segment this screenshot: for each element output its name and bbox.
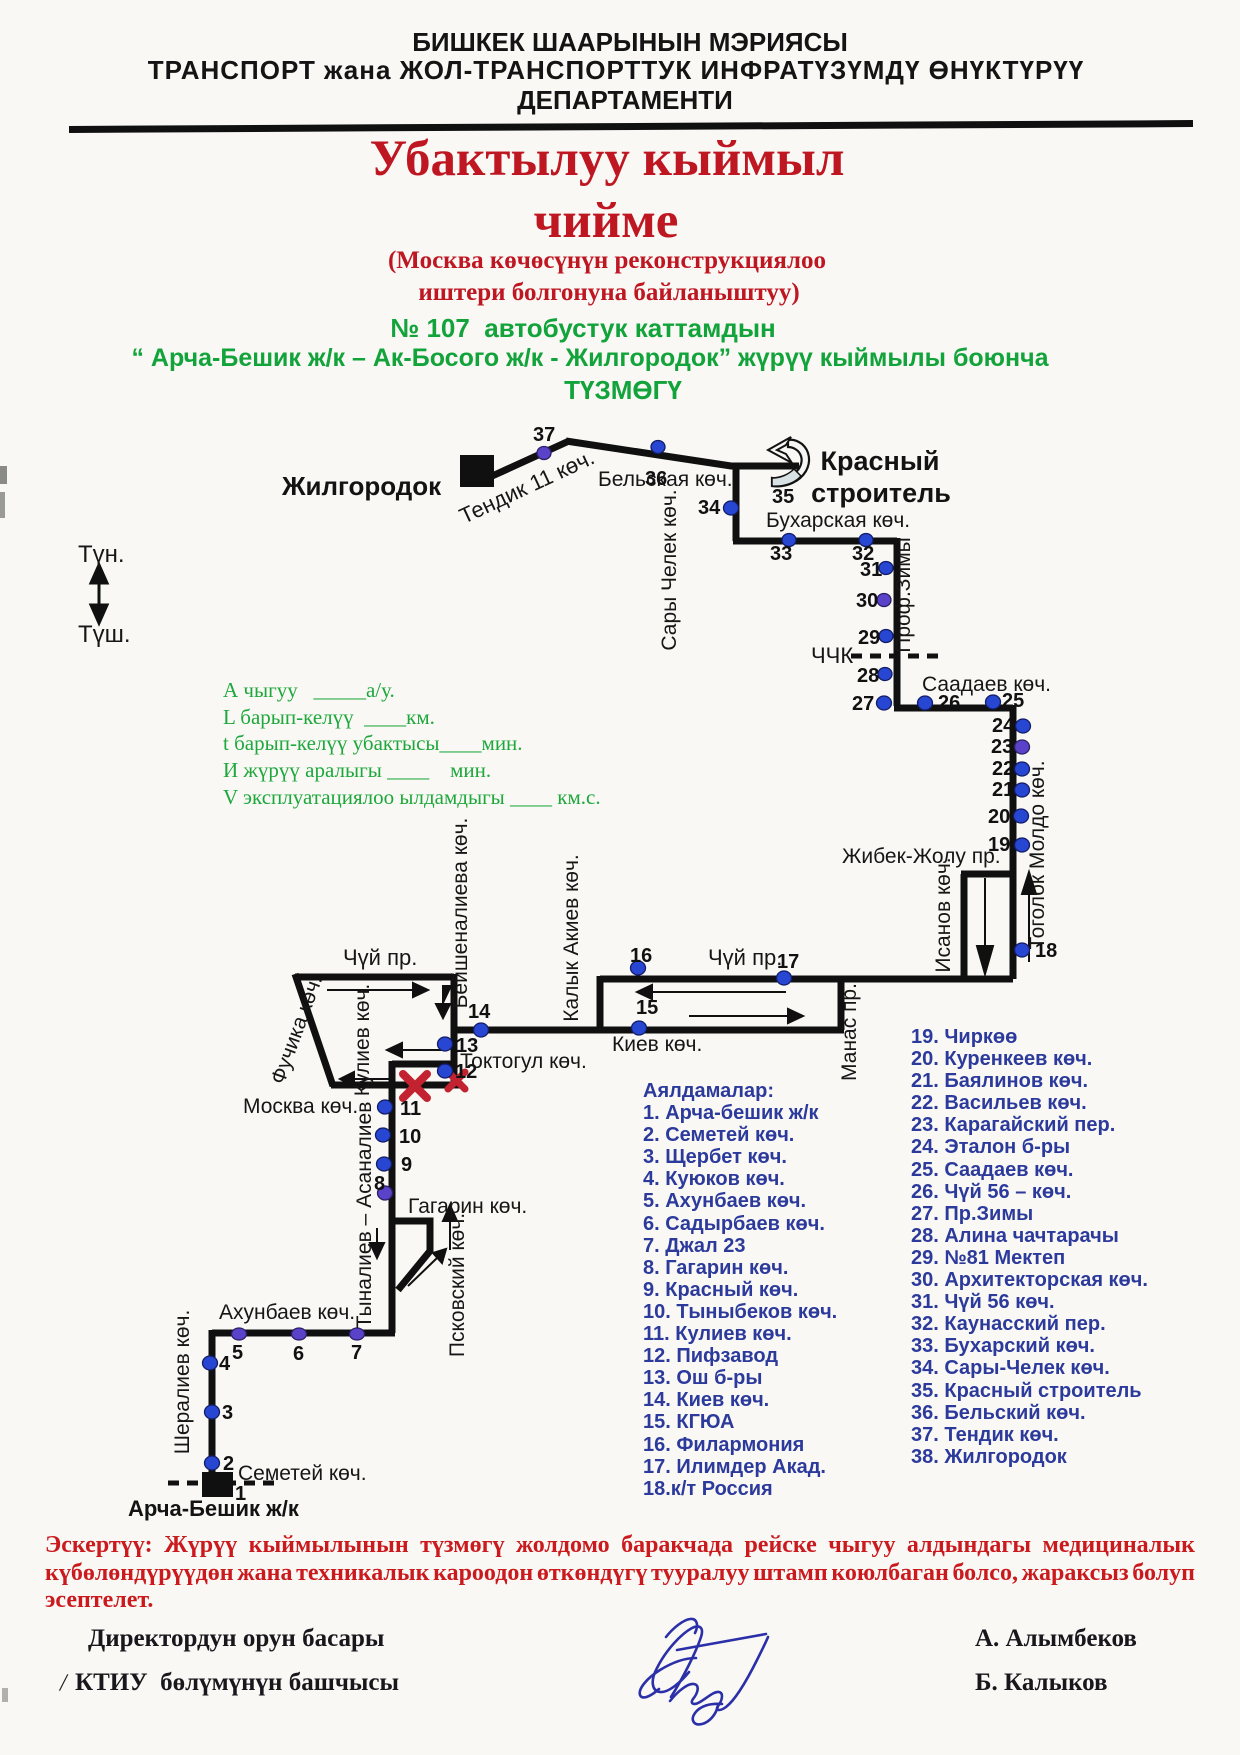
svg-text:21: 21	[992, 779, 1014, 801]
svg-text:Чүй пр.: Чүй пр.	[343, 945, 417, 970]
svg-text:16: 16	[630, 945, 652, 967]
svg-text:28: 28	[857, 665, 879, 687]
svg-text:Кулиев көч.: Кулиев көч.	[351, 984, 374, 1097]
svg-text:ЧЧК: ЧЧК	[811, 643, 853, 668]
svg-text:Чүй пр.: Чүй пр.	[708, 945, 782, 970]
svg-text:Тыналиев – Асаналиев: Тыналиев – Асаналиев	[353, 1102, 376, 1329]
svg-text:Ахунбаев көч.: Ахунбаев көч.	[219, 1301, 355, 1324]
svg-text:Токтогул көч.: Токтогул көч.	[460, 1050, 587, 1073]
svg-text:Псковский көч.: Псковский көч.	[446, 1213, 469, 1357]
svg-text:Манас пр.: Манас пр.	[838, 983, 861, 1081]
svg-text:34: 34	[698, 497, 721, 519]
svg-text:37: 37	[533, 424, 555, 446]
svg-text:15: 15	[636, 997, 658, 1019]
svg-text:Семетей көч.: Семетей көч.	[238, 1462, 367, 1485]
svg-text:2: 2	[223, 1453, 234, 1475]
svg-text:Москва көч.: Москва көч.	[243, 1095, 358, 1118]
svg-text:6: 6	[293, 1343, 304, 1365]
svg-text:7: 7	[351, 1342, 362, 1364]
svg-text:Жилгородок: Жилгородок	[281, 471, 442, 501]
svg-text:Калык Акиев көч.: Калык Акиев көч.	[560, 854, 583, 1022]
svg-text:10: 10	[399, 1126, 421, 1148]
svg-text:31: 31	[860, 559, 882, 581]
svg-text:35: 35	[772, 486, 794, 508]
svg-text:Түн.: Түн.	[78, 541, 125, 568]
svg-text:3: 3	[222, 1402, 233, 1424]
svg-text:Сары Челек көч.: Сары Челек көч.	[658, 489, 681, 650]
svg-text:Красный: Красный	[821, 446, 940, 476]
svg-text:29: 29	[858, 627, 880, 649]
svg-text:Бейшеналиева көч.: Бейшеналиева көч.	[449, 818, 472, 1009]
svg-text:Арча-Бешик ж/к: Арча-Бешик ж/к	[128, 1496, 300, 1521]
svg-text:22: 22	[992, 758, 1014, 780]
svg-text:Түш.: Түш.	[78, 621, 131, 648]
svg-text:Бухарская көч.: Бухарская көч.	[766, 509, 910, 532]
svg-text:Тоголок Молдо көч.: Тоголок Молдо көч.	[1026, 760, 1049, 949]
svg-text:Жибек-Жолу пр.: Жибек-Жолу пр.	[842, 845, 1001, 868]
svg-text:Киев көч.: Киев көч.	[612, 1033, 702, 1056]
svg-text:строитель: строитель	[811, 478, 951, 508]
svg-text:Шералиев көч.: Шералиев көч.	[171, 1310, 194, 1455]
svg-text:23: 23	[991, 736, 1013, 758]
svg-text:24: 24	[992, 715, 1015, 737]
svg-text:Исанов көч.: Исанов көч.	[932, 857, 955, 972]
svg-text:5: 5	[232, 1342, 243, 1364]
svg-text:Бельская көч.: Бельская көч.	[598, 468, 733, 491]
svg-text:11: 11	[400, 1098, 421, 1120]
svg-text:27: 27	[852, 693, 874, 715]
svg-text:20: 20	[988, 806, 1010, 828]
svg-text:30: 30	[856, 590, 878, 612]
svg-text:9: 9	[401, 1154, 412, 1176]
svg-text:Саадаев көч.: Саадаев көч.	[922, 673, 1051, 696]
svg-text:Проф.Зимы: Проф.Зимы	[892, 537, 915, 653]
svg-text:4: 4	[219, 1353, 231, 1375]
svg-text:33: 33	[770, 543, 792, 565]
